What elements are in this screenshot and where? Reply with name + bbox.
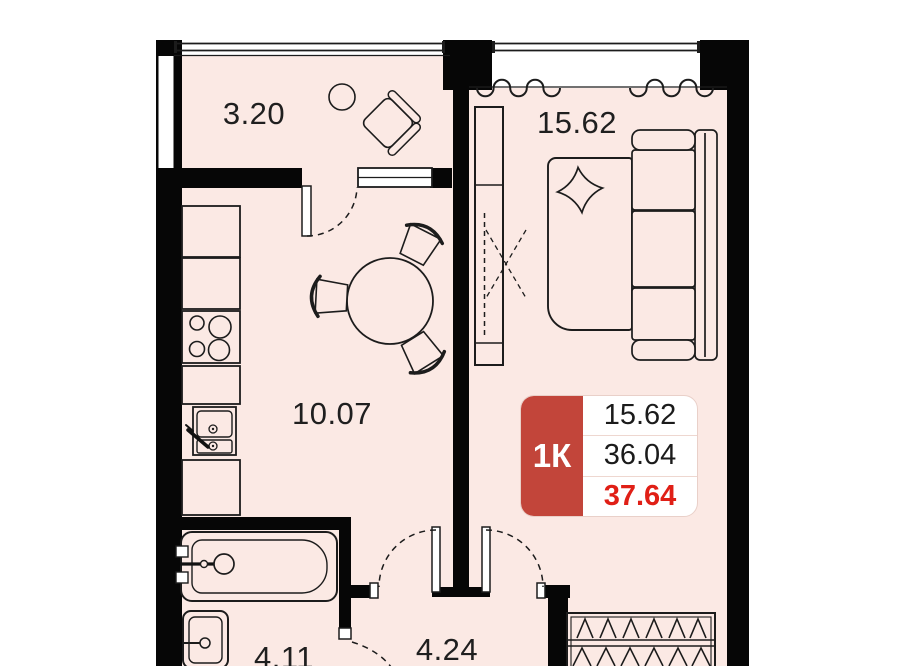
bed (548, 158, 632, 330)
kitchen-counter (182, 206, 240, 515)
room-label-hallway: 4.24 (416, 632, 478, 666)
floor-plan-drawing (0, 0, 900, 666)
room-label-balcony: 3.20 (223, 96, 285, 132)
room-label-kitchen: 10.07 (292, 396, 372, 432)
apartment-info-badge: 1К 15.62 36.04 37.64 (520, 395, 698, 517)
hall-closet (567, 613, 715, 666)
area-without-balcony-value: 36.04 (583, 435, 697, 475)
kitchen-sink (186, 407, 236, 455)
bathroom-sink (183, 611, 228, 666)
total-area-value: 37.64 (583, 476, 697, 516)
room-label-bathroom: 4.11 (254, 640, 314, 666)
balcony-wall-gap (159, 56, 174, 168)
floor-plan-screenshot: 3.20 15.62 10.07 4.11 4.24 1К 15.62 36.0… (0, 0, 900, 666)
dining-table (347, 258, 433, 344)
apartment-areas: 15.62 36.04 37.64 (583, 396, 697, 516)
bathtub (176, 532, 337, 601)
sofa (632, 130, 717, 360)
apartment-type-label: 1К (521, 396, 583, 516)
living-area-value: 15.62 (583, 396, 697, 435)
room-label-living: 15.62 (537, 105, 617, 141)
balcony-table (329, 84, 355, 110)
